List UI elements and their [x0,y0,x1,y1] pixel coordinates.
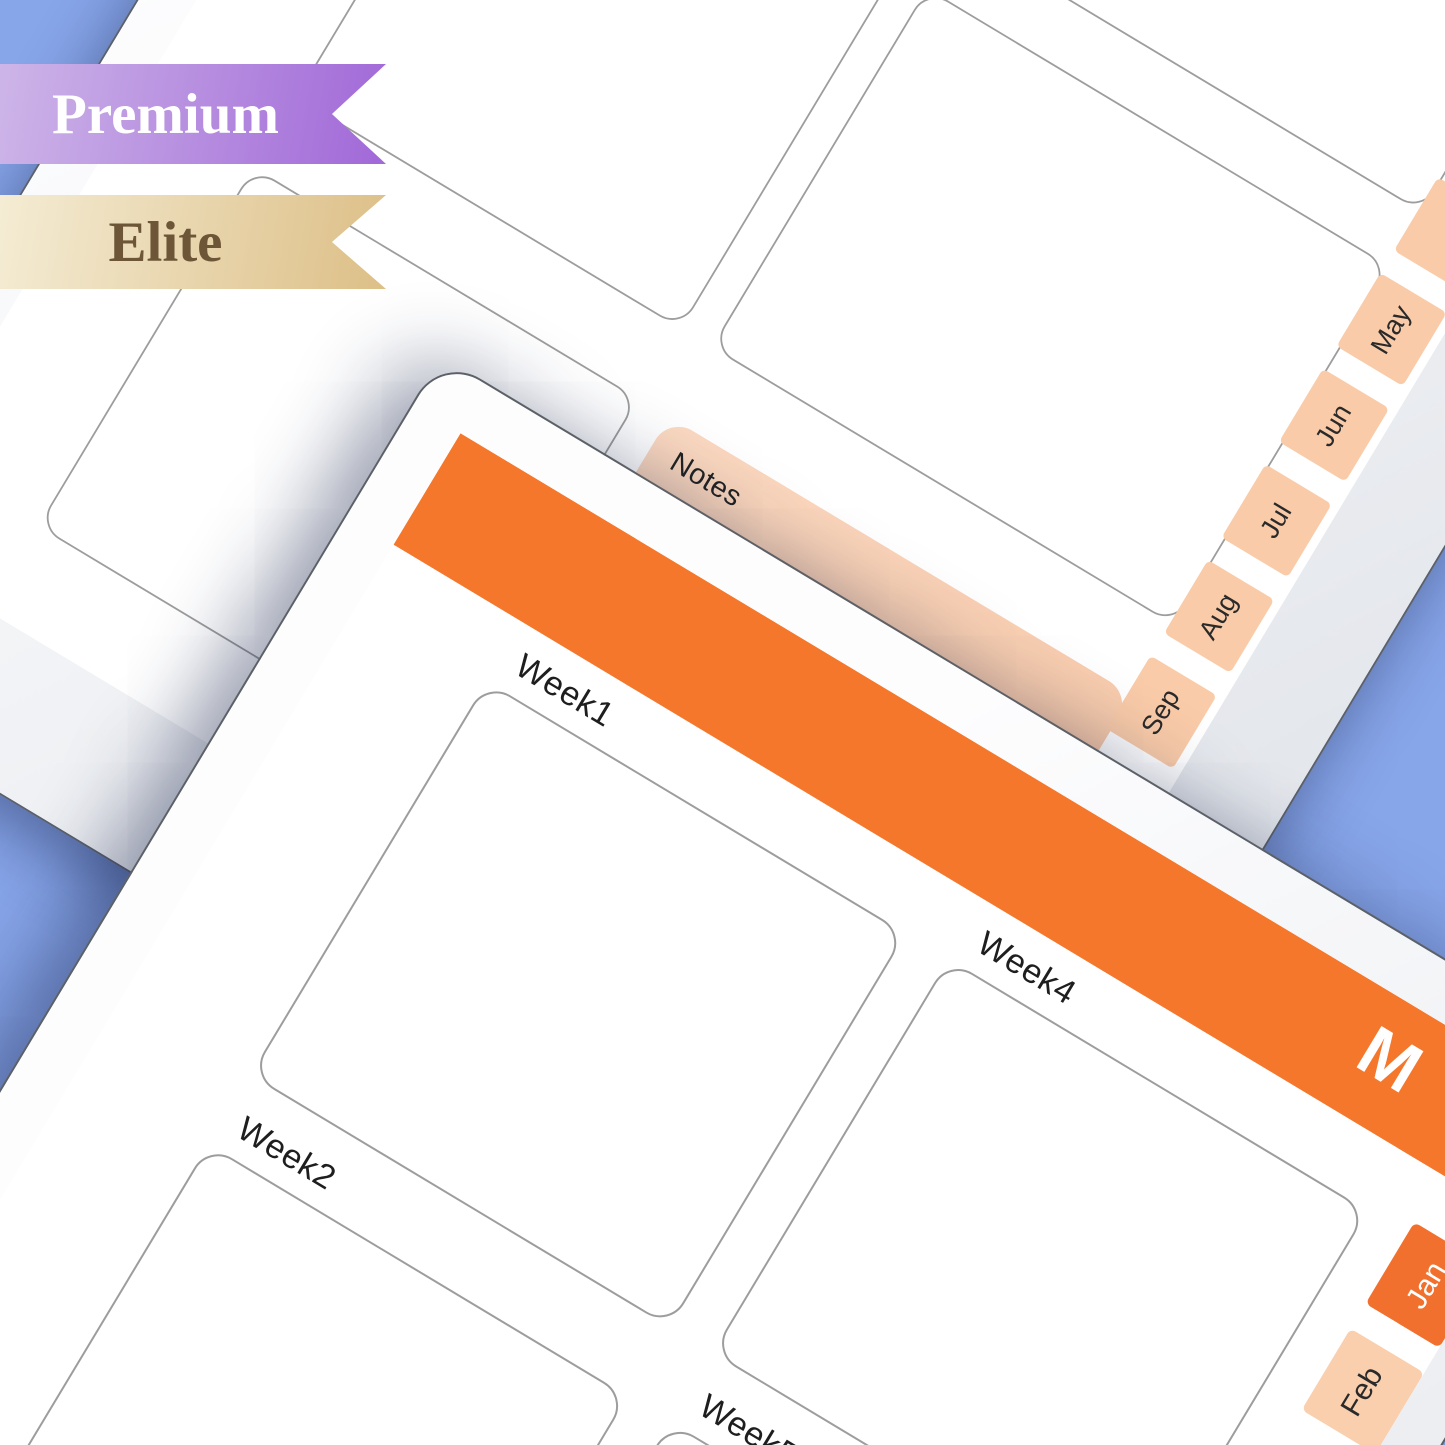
back-month-tab-label: Sep [1136,684,1187,741]
back-month-tab-sep[interactable]: Sep [1106,656,1216,769]
brand-logo: M [1344,1010,1437,1110]
back-month-tab-label: Aug [1194,588,1245,645]
back-month-tab-label: Jun [1310,399,1359,452]
scene: Week5 Notes May Jun Jul Aug Sep M Week1 … [0,0,1445,1445]
back-month-tab-label: Jul [1255,498,1299,543]
premium-ribbon-label: Premium [52,82,279,147]
front-month-tab-label: Jan [1400,1256,1445,1315]
premium-ribbon-badge: Premium [0,64,386,164]
front-month-tab-jan[interactable]: Jan [1365,1222,1445,1348]
front-month-tab-feb[interactable]: Feb [1302,1328,1425,1445]
front-month-tab-label: Feb [1335,1360,1391,1422]
back-month-tab-label: May [1365,300,1418,359]
elite-ribbon-badge: Elite [0,195,386,289]
elite-ribbon-label: Elite [109,210,223,275]
